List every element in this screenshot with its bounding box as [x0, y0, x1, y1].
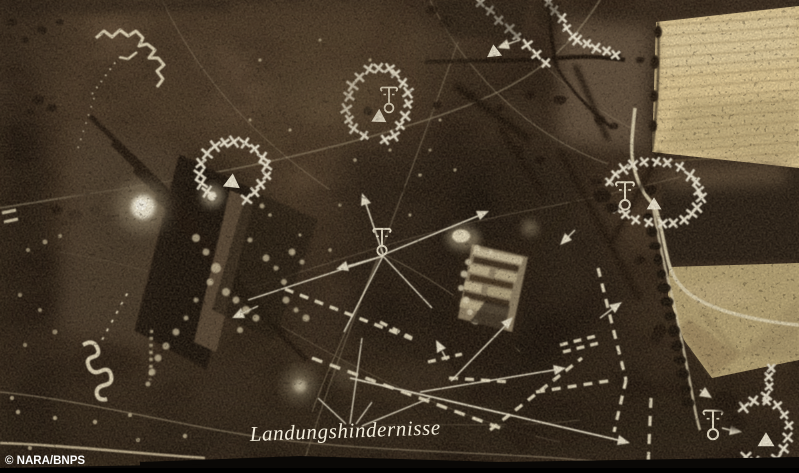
svg-text:© NARA/BNPS: © NARA/BNPS [5, 455, 85, 467]
